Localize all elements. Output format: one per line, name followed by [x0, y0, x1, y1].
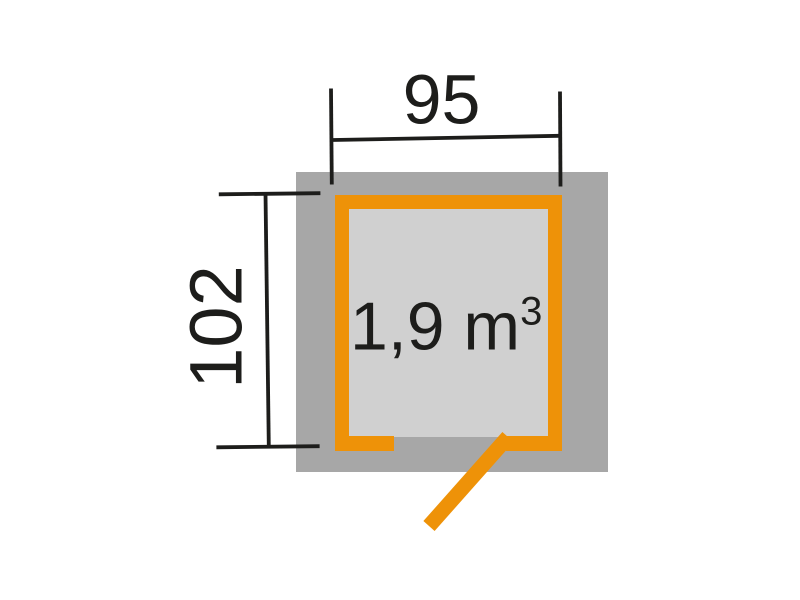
svg-text:102: 102 [175, 265, 258, 388]
svg-text:1,9 m3: 1,9 m3 [350, 289, 542, 365]
svg-text:95: 95 [403, 61, 481, 139]
